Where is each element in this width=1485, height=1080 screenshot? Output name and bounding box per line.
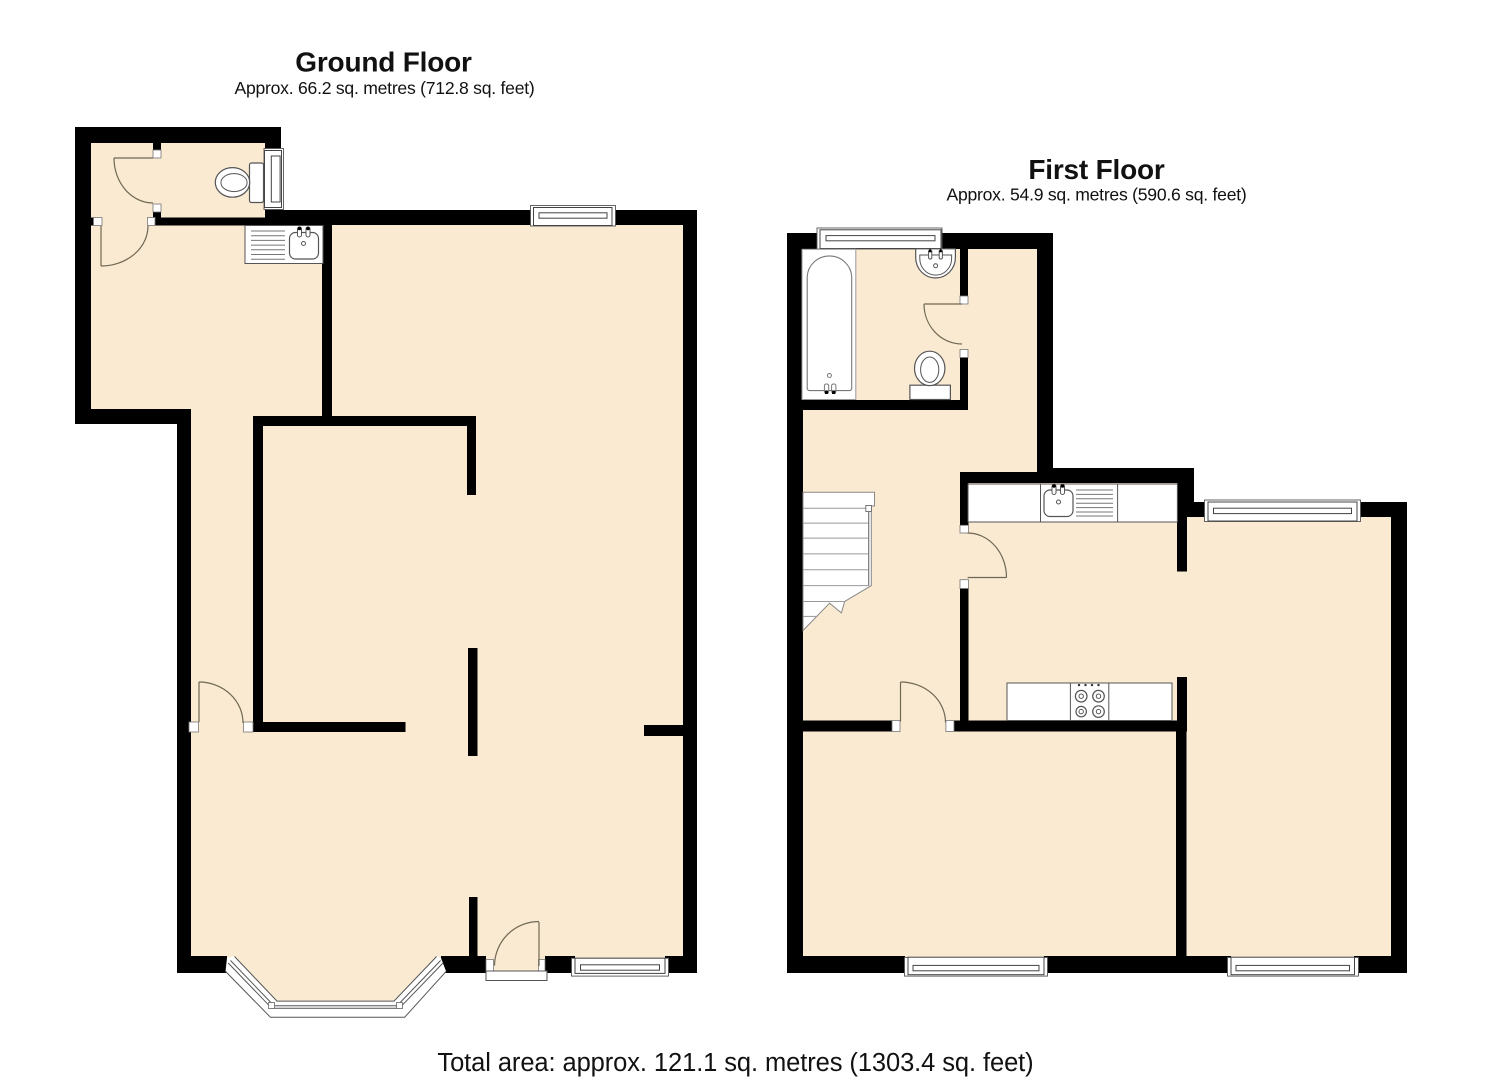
- svg-text:Total area: approx. 121.1 sq.: Total area: approx. 121.1 sq. metres (13…: [437, 1049, 1033, 1077]
- svg-text:Approx. 54.9 sq. metres (590.6: Approx. 54.9 sq. metres (590.6 sq. feet): [946, 185, 1246, 205]
- svg-text:First Floor: First Floor: [1028, 154, 1165, 185]
- svg-text:Ground Floor: Ground Floor: [295, 47, 472, 78]
- svg-text:Approx. 66.2 sq. metres (712.8: Approx. 66.2 sq. metres (712.8 sq. feet): [234, 78, 534, 98]
